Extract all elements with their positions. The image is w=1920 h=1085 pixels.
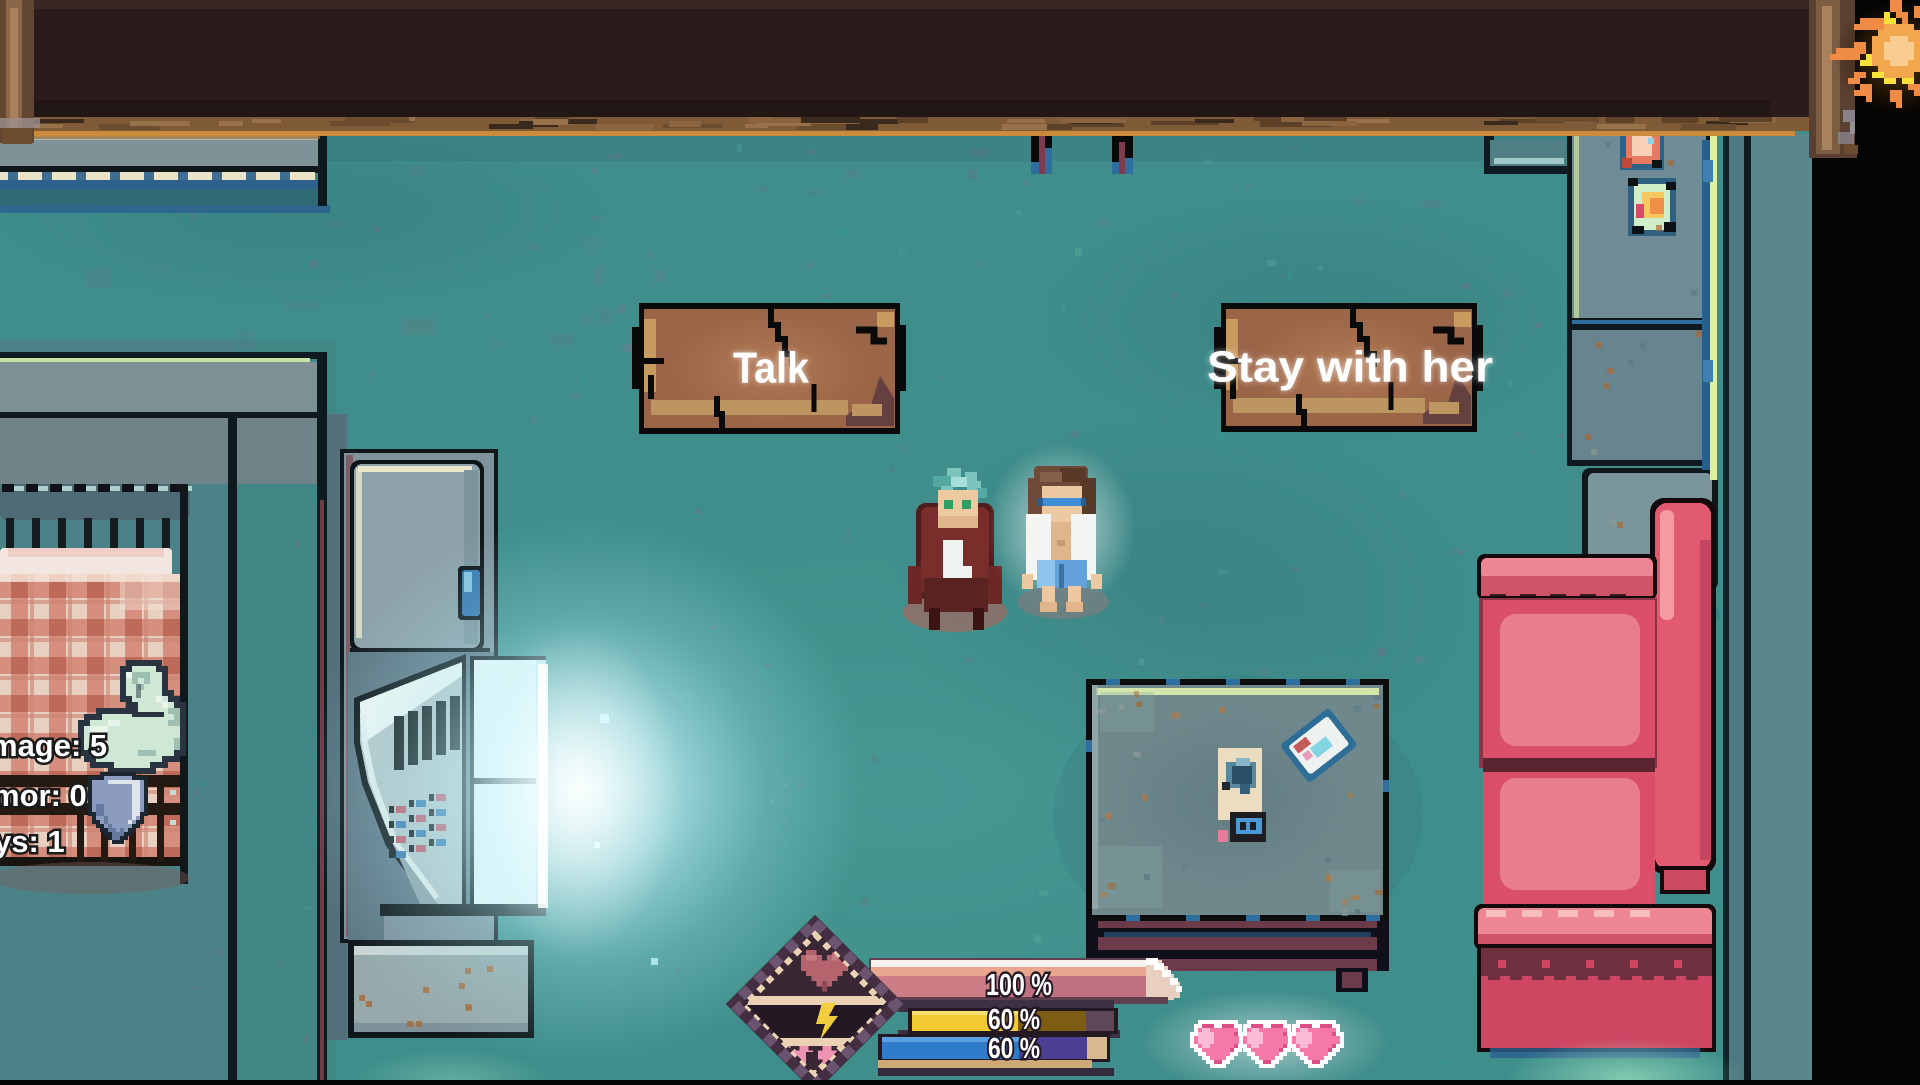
svg-text:Stay with her: Stay with her	[1207, 343, 1493, 392]
svg-text:mage: 5: mage: 5	[0, 728, 107, 763]
svg-text:Talk: Talk	[733, 344, 809, 393]
svg-text:60 %: 60 %	[988, 1033, 1040, 1065]
svg-text:60 %: 60 %	[988, 1004, 1040, 1036]
svg-text:mor: 0: mor: 0	[0, 778, 87, 813]
svg-text:ys: 1: ys: 1	[0, 824, 65, 859]
svg-text:100 %: 100 %	[986, 967, 1052, 1002]
